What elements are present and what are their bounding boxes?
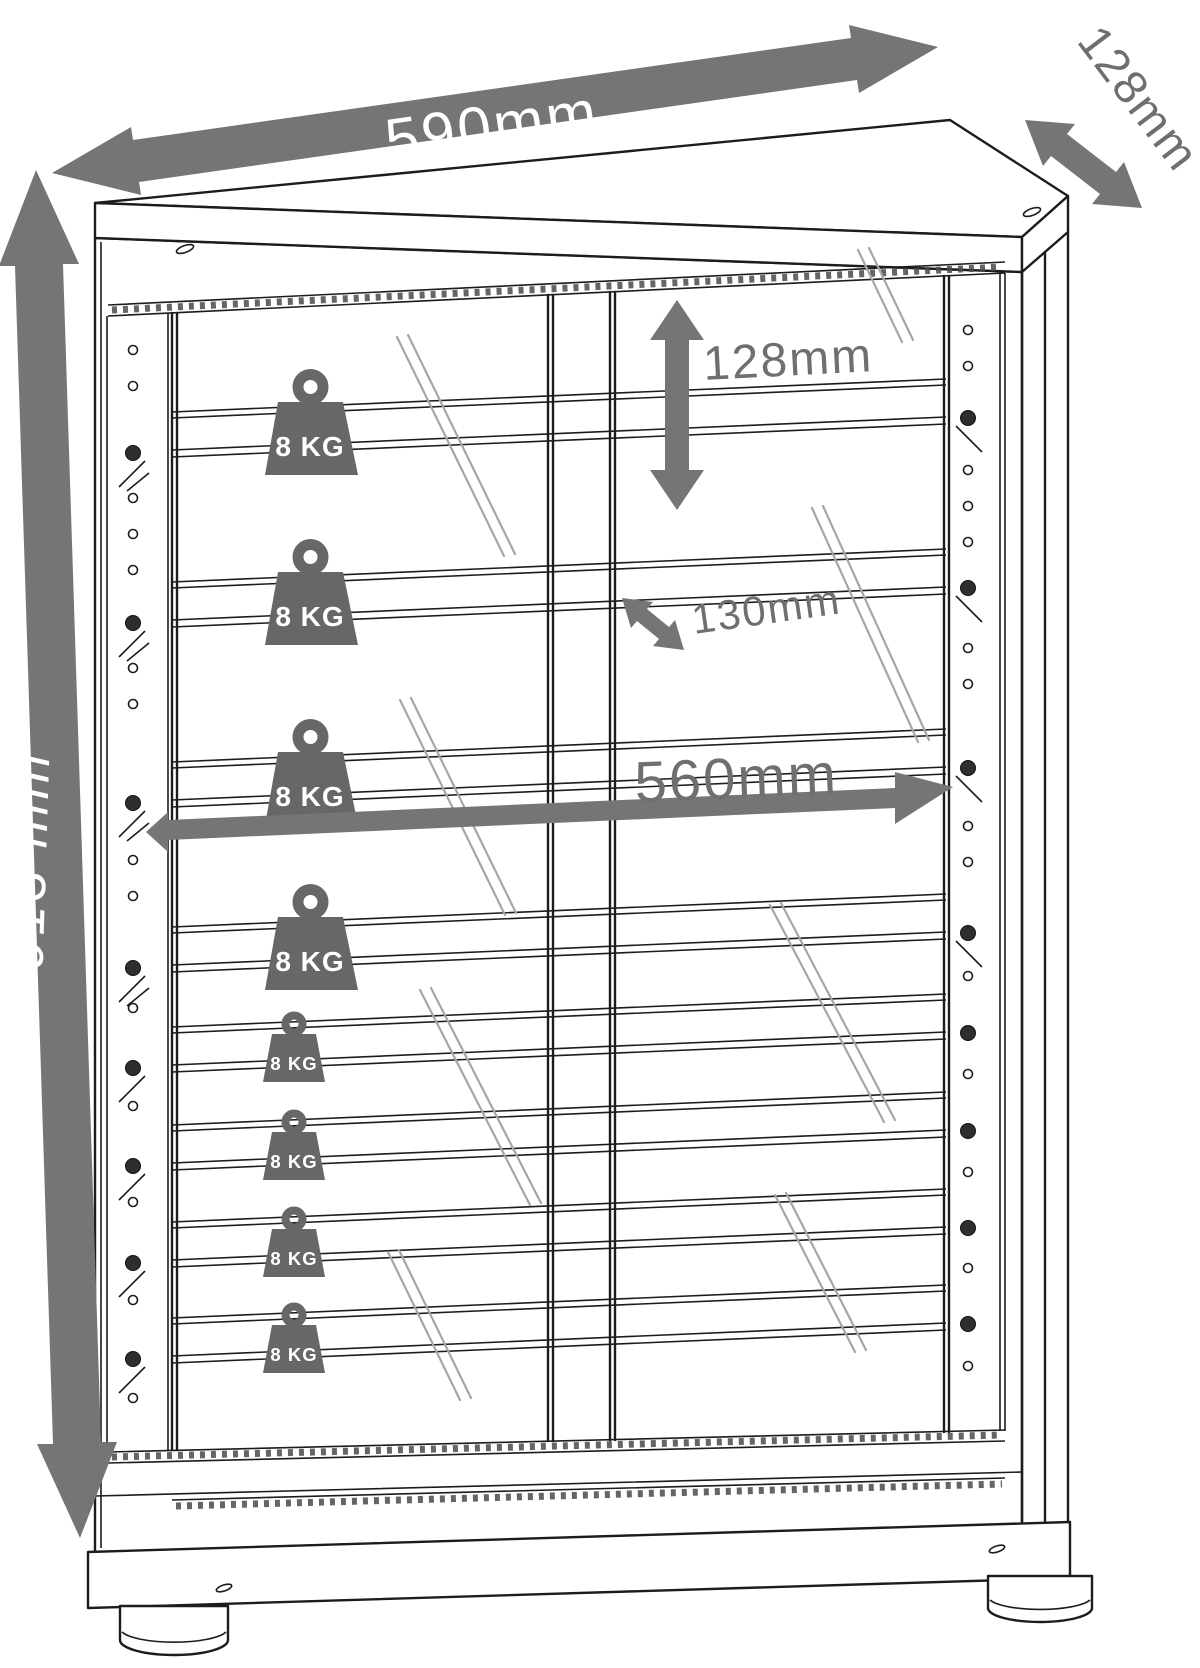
cabinet-dimension-diagram: 8 KG 8 KG 8 KG 8 KG 8 KG 8 KG xyxy=(0,0,1200,1668)
weight-capacity-label: 8 KG xyxy=(275,946,344,977)
page: 8 KG 8 KG 8 KG 8 KG 8 KG 8 KG xyxy=(0,0,1200,1668)
weight-capacity-label: 8 KG xyxy=(270,1053,317,1074)
weight-capacity-label: 8 KG xyxy=(275,781,344,812)
weight-capacity-label: 8 KG xyxy=(275,431,344,462)
weight-capacity-label: 8 KG xyxy=(270,1248,317,1269)
weight-capacity-label: 8 KG xyxy=(270,1151,317,1172)
shelf-spacing-label: 128mm xyxy=(702,329,875,391)
cabinet-foot-left xyxy=(120,1606,228,1655)
overall-height-label: 913 mm xyxy=(0,749,61,970)
right-side-panel xyxy=(1022,232,1068,1552)
weight-capacity-label: 8 KG xyxy=(270,1344,317,1365)
cabinet-front-frame xyxy=(95,238,1022,1552)
cabinet-foot-right xyxy=(988,1576,1092,1622)
overall-depth-dimension: 128mm xyxy=(1025,16,1200,208)
weight-capacity-label: 8 KG xyxy=(275,601,344,632)
interior-width-label: 560mm xyxy=(633,742,839,816)
